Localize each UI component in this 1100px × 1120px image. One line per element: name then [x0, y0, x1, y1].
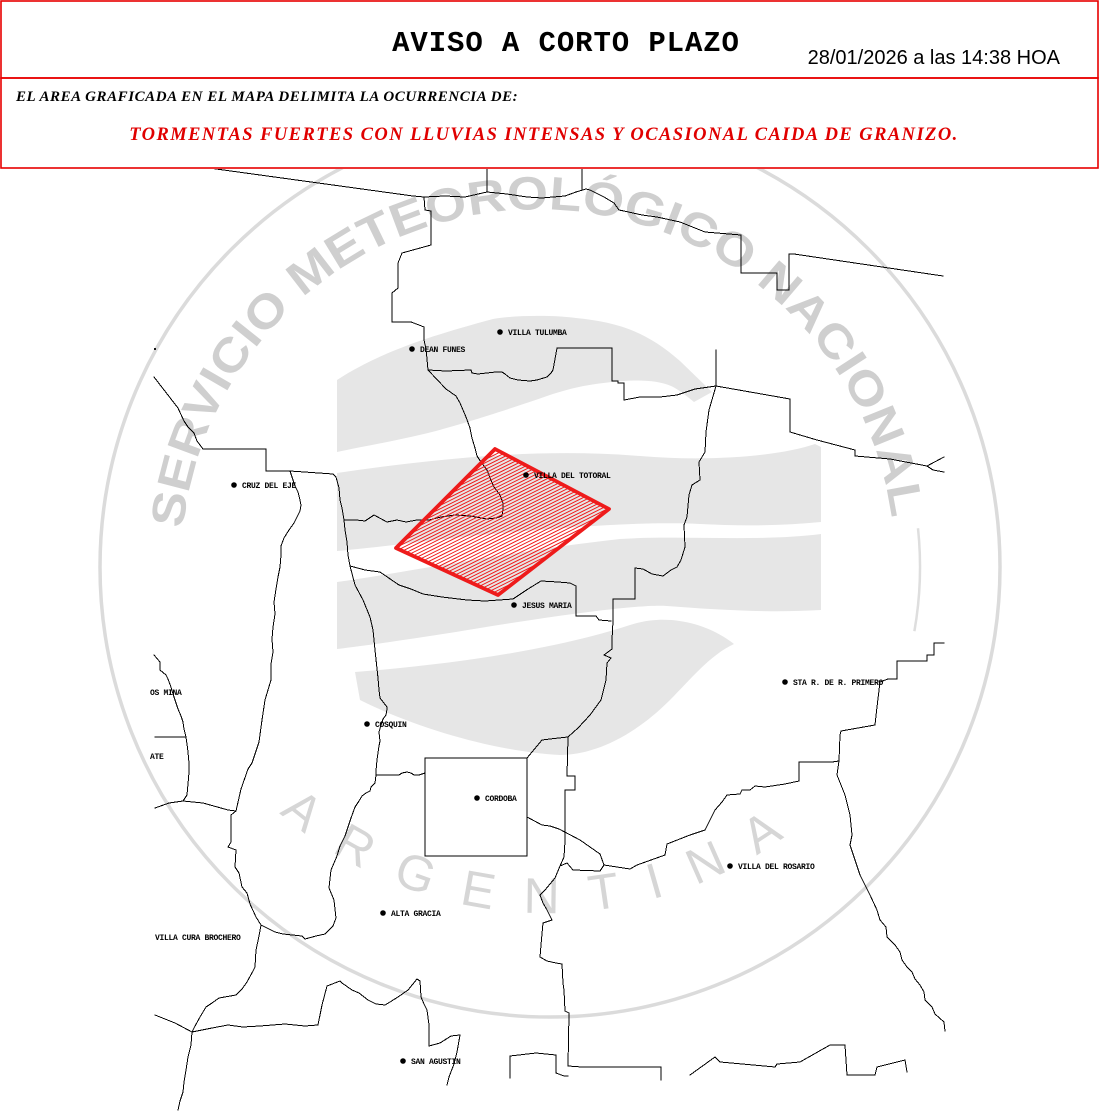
svg-text:AVISO A CORTO PLAZO: AVISO A CORTO PLAZO: [392, 27, 740, 60]
svg-text:COSQUIN: COSQUIN: [375, 721, 407, 730]
svg-text:ALTA GRACIA: ALTA GRACIA: [391, 910, 441, 919]
svg-text:VILLA CURA BROCHERO: VILLA CURA BROCHERO: [155, 934, 241, 943]
svg-text:EL AREA GRAFICADA EN EL MAPA D: EL AREA GRAFICADA EN EL MAPA DELIMITA LA…: [15, 89, 518, 105]
svg-text:ATE: ATE: [150, 753, 164, 762]
svg-text:VILLA DEL TOTORAL: VILLA DEL TOTORAL: [534, 472, 611, 481]
svg-text:DEAN FUNES: DEAN FUNES: [420, 346, 466, 355]
svg-text:STA R. DE R. PRIMERO: STA R. DE R. PRIMERO: [793, 679, 884, 688]
svg-text:CORDOBA: CORDOBA: [485, 795, 517, 804]
svg-text:OS MINA: OS MINA: [150, 689, 182, 698]
svg-text:TORMENTAS FUERTES CON LLUVIAS: TORMENTAS FUERTES CON LLUVIAS INTENSAS Y…: [129, 125, 959, 145]
svg-text:VILLA TULUMBA: VILLA TULUMBA: [508, 329, 567, 338]
svg-text:JESUS MARIA: JESUS MARIA: [522, 602, 572, 611]
svg-text:ARGENTINA: ARGENTINA: [272, 778, 791, 924]
svg-text:VILLA DEL ROSARIO: VILLA DEL ROSARIO: [738, 863, 815, 872]
svg-text:CRUZ DEL EJE: CRUZ DEL EJE: [242, 482, 297, 491]
svg-text:28/01/2026 a las 14:38 HOA: 28/01/2026 a las 14:38 HOA: [808, 47, 1061, 69]
svg-text:SAN AGUSTIN: SAN AGUSTIN: [411, 1058, 461, 1067]
